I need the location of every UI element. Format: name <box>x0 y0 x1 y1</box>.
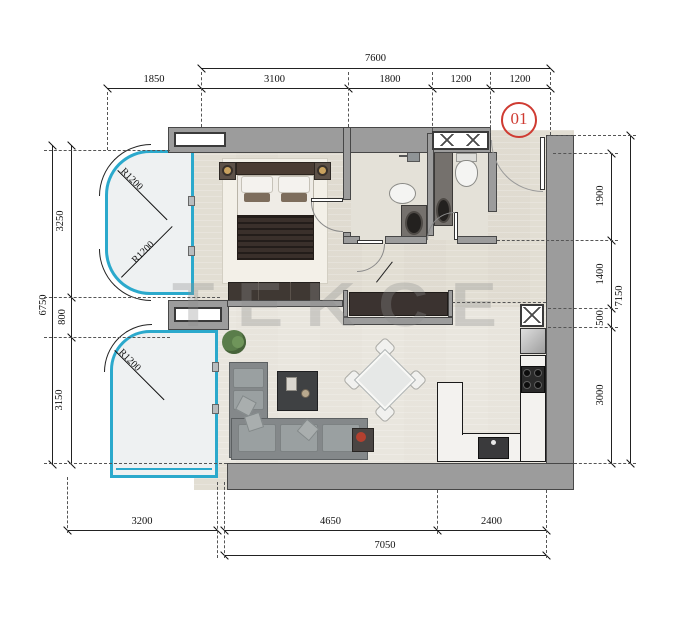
dim-label-3250: 3250 <box>55 201 67 241</box>
dim-label-4650: 4650 <box>224 516 437 528</box>
glass-mullion <box>212 362 219 372</box>
wall-bottom <box>227 463 574 490</box>
stove-burner <box>534 381 542 389</box>
extension-line <box>548 135 636 136</box>
watermark: TEKCE <box>172 270 519 341</box>
wall-bedroom-bath <box>343 127 351 200</box>
extension-line <box>550 72 551 135</box>
glass-mullion <box>212 404 219 414</box>
extension-line <box>574 463 636 464</box>
shower-arm <box>399 155 408 157</box>
wall-right <box>546 135 574 490</box>
wall-bath-bottom-c <box>457 236 497 244</box>
dim-label-2400: 2400 <box>437 516 546 528</box>
extension-line <box>201 72 202 127</box>
dim-label-1200b: 1200 <box>490 74 550 86</box>
kitchen-counter-left-arm <box>437 382 463 435</box>
bedroom-window <box>174 132 226 147</box>
dim-line-left-overall <box>52 145 53 464</box>
bed-accent-pillow <box>244 193 270 202</box>
balcony-2-rail-line <box>116 468 212 470</box>
stove-burner <box>523 381 531 389</box>
dim-line-top-chain <box>107 88 550 89</box>
toilet-1 <box>389 183 416 204</box>
extension-line <box>217 482 218 558</box>
dim-label-1900: 1900 <box>595 176 607 216</box>
stove-burner <box>523 369 531 377</box>
extension-line <box>546 490 547 558</box>
bed-accent-pillow <box>281 193 307 202</box>
dim-label-7050: 7050 <box>224 540 546 552</box>
extension-line <box>548 308 618 309</box>
dim-line-bottom-chain <box>224 530 546 531</box>
dim-label-3200: 3200 <box>67 516 217 528</box>
dim-line-left-chain <box>71 145 72 464</box>
extension-line <box>67 477 68 533</box>
dim-label-6750: 6750 <box>38 285 50 325</box>
dim-label-1400: 1400 <box>595 254 607 294</box>
coffee-table-bowl <box>301 389 310 398</box>
bed-headboard <box>236 162 315 175</box>
toilet-2 <box>455 160 478 187</box>
shaft-x-icon <box>435 134 459 146</box>
dim-label-3100: 3100 <box>201 74 348 86</box>
flowers-icon <box>356 432 366 442</box>
coffee-table <box>277 371 318 411</box>
dim-line-bottom-left <box>67 530 217 531</box>
bed-blanket <box>237 215 314 260</box>
bathroom-1-sink <box>405 211 423 235</box>
lamp-icon <box>317 165 328 176</box>
dim-line-bottom-overall <box>224 555 546 556</box>
dim-line-right-overall <box>630 135 631 463</box>
coffee-table-tray <box>286 377 297 391</box>
floor-plan: R1200 R1200 R1200 <box>0 0 687 624</box>
extension-line <box>224 482 225 558</box>
glass-mullion <box>188 196 195 206</box>
extension-line <box>553 153 618 154</box>
bed-pillow <box>278 176 310 193</box>
dim-label-800: 800 <box>57 297 69 337</box>
extension-line <box>44 337 170 338</box>
extension-line <box>452 302 546 303</box>
extension-line <box>497 240 618 241</box>
kitchen-shaft-x-icon <box>523 307 541 323</box>
unit-number-badge: 01 <box>501 102 537 138</box>
extension-line <box>548 327 618 328</box>
bed-pillow <box>241 176 273 193</box>
glass-mullion <box>188 246 195 256</box>
shaft-x-icon <box>461 134 485 146</box>
dim-label-7150: 7150 <box>614 276 626 316</box>
dim-label-3000: 3000 <box>595 375 607 415</box>
extension-line <box>348 72 349 127</box>
extension-line <box>490 72 491 133</box>
dim-label-500: 500 <box>595 298 607 338</box>
kitchen-sink-faucet <box>491 440 496 445</box>
extension-line <box>432 72 433 131</box>
fridge <box>520 328 546 354</box>
sofa-cushion <box>233 368 264 388</box>
dim-label-1800: 1800 <box>348 74 432 86</box>
dim-label-1850: 1850 <box>107 74 201 86</box>
dim-label-3150: 3150 <box>54 380 66 420</box>
stove-burner <box>534 369 542 377</box>
dim-label-7600: 7600 <box>201 53 550 65</box>
extension-line <box>437 490 438 534</box>
extension-line <box>107 92 108 150</box>
extension-line <box>44 150 170 151</box>
extension-line <box>44 297 220 298</box>
wall-bath-bottom-b <box>385 236 427 244</box>
dim-line-top-overall <box>201 68 550 69</box>
dim-label-1200a: 1200 <box>432 74 490 86</box>
extension-line <box>44 463 227 464</box>
lamp-icon <box>222 165 233 176</box>
